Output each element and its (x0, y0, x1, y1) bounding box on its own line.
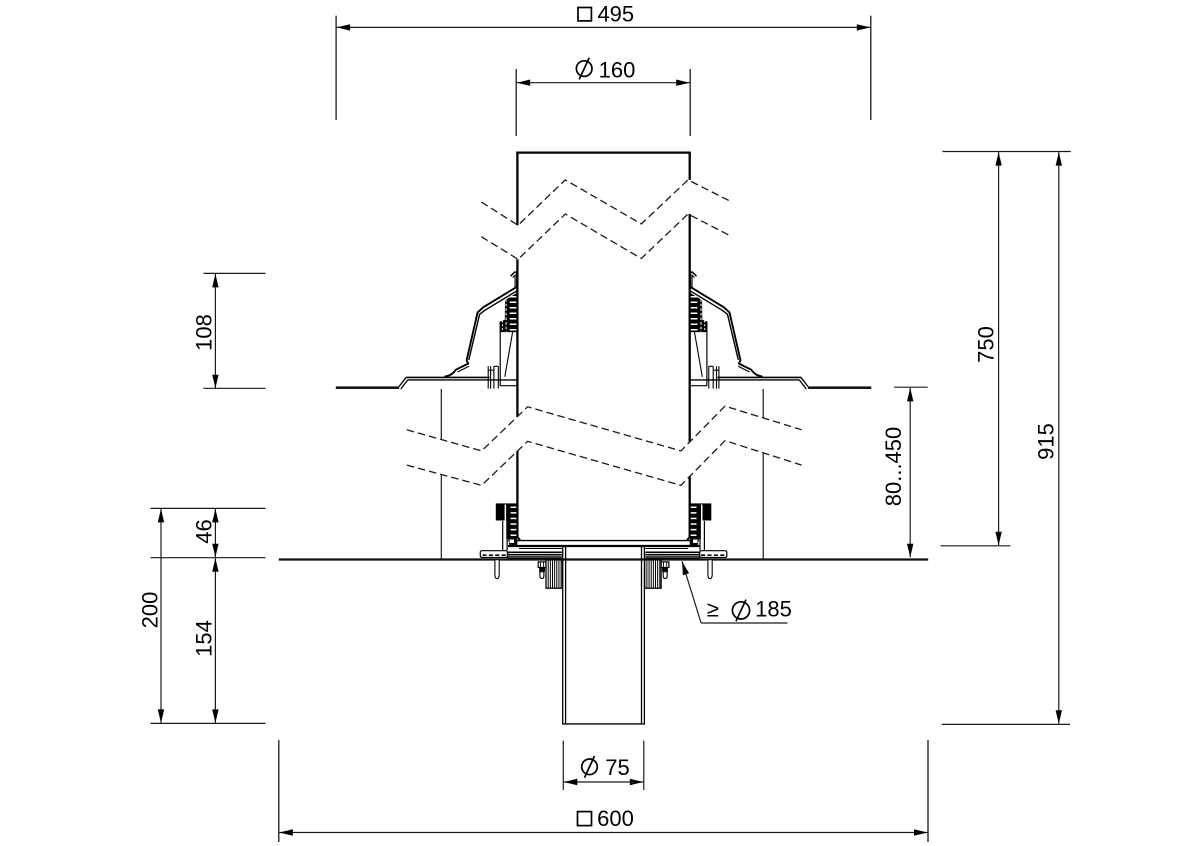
svg-text:160: 160 (599, 58, 636, 83)
svg-text:80...450: 80...450 (881, 427, 906, 507)
svg-text:495: 495 (597, 2, 634, 27)
svg-text:185: 185 (755, 597, 792, 622)
svg-text:75: 75 (605, 755, 629, 780)
svg-text:≥: ≥ (707, 597, 719, 622)
svg-text:915: 915 (1034, 423, 1059, 460)
svg-text:750: 750 (974, 326, 999, 363)
svg-text:600: 600 (597, 806, 634, 831)
svg-text:108: 108 (192, 314, 217, 351)
svg-text:154: 154 (192, 620, 217, 657)
svg-text:200: 200 (138, 592, 163, 629)
svg-text:46: 46 (192, 519, 217, 543)
